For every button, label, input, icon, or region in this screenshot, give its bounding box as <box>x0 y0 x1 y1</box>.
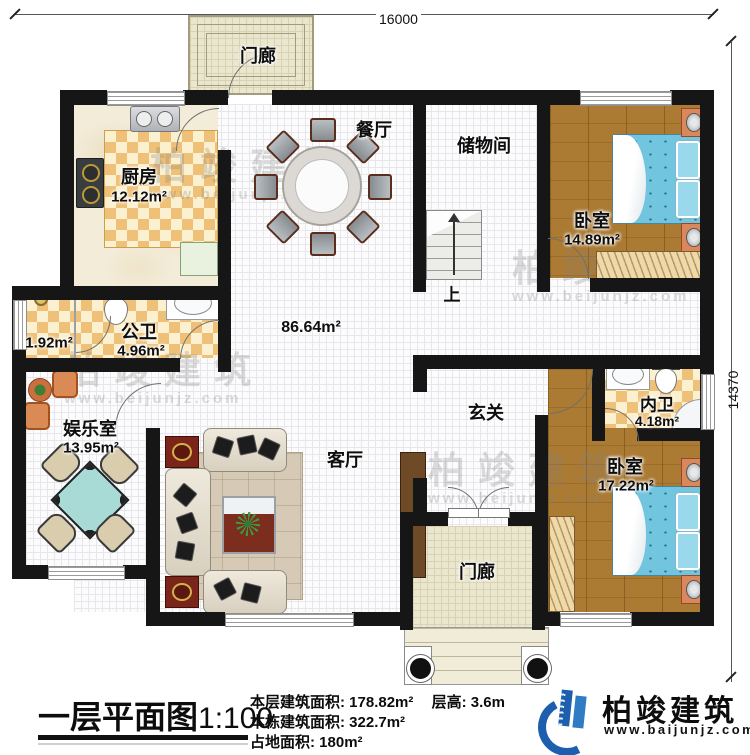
stat-row: 本栋建筑面积: 322.7m² <box>250 713 505 733</box>
wall <box>590 278 714 292</box>
room-label-dining: 餐厅 <box>356 116 392 142</box>
dimension-right: 14370 <box>725 357 741 423</box>
stat-label: 本栋建筑面积: <box>250 714 345 731</box>
sofa-pillow <box>236 434 257 455</box>
window <box>701 374 715 430</box>
wall <box>400 512 413 630</box>
entry-door-leaf <box>478 508 510 518</box>
stat-value: 178.82m² <box>349 694 413 711</box>
window <box>560 613 632 627</box>
wall <box>183 90 228 105</box>
sink-bowl <box>157 111 173 127</box>
dining-chair <box>368 174 392 200</box>
wall <box>413 355 714 369</box>
room-label-bedroom2: 卧室 <box>607 453 643 479</box>
wall <box>146 428 160 626</box>
plan-title: 一层平面图1:100 <box>38 692 273 738</box>
wall <box>12 565 48 579</box>
coffee-table <box>222 496 276 554</box>
side-cabinet <box>165 436 199 468</box>
window <box>225 613 354 627</box>
wall <box>12 286 231 300</box>
wardrobe <box>596 251 706 279</box>
burner <box>82 186 100 204</box>
title-underline <box>38 735 248 740</box>
sink-bowl <box>136 111 152 127</box>
stair-arrow-head <box>448 213 460 222</box>
wall <box>146 612 225 626</box>
room-label-storage: 储物间 <box>457 132 511 158</box>
room-label-master-bath: 内卫 <box>640 391 674 416</box>
wall <box>413 104 426 292</box>
area-label-entertainment: 13.95m² <box>63 440 119 457</box>
fridge <box>180 242 218 276</box>
cabinet-ornament <box>172 583 192 601</box>
wall <box>218 150 231 372</box>
side-cabinet <box>165 576 199 608</box>
area-label-bedroom2: 17.22m² <box>598 478 654 495</box>
stat-label: 本层建筑面积: <box>250 694 345 711</box>
wall <box>532 612 560 626</box>
stat-label: 占地面积: <box>250 734 315 751</box>
window <box>107 91 185 106</box>
logo-icon <box>538 688 594 744</box>
wall <box>413 355 427 392</box>
bed-sheet <box>613 487 646 575</box>
wall <box>12 358 180 372</box>
room-label-living: 客厅 <box>327 446 363 472</box>
bed-pillow <box>676 532 700 570</box>
area-label-public-bath: 4.96m² <box>117 343 165 360</box>
dining-chair <box>310 232 336 256</box>
burner <box>82 164 100 182</box>
stat-row: 本层建筑面积: 178.82m² 层高: 3.6m <box>250 693 505 713</box>
plant-table <box>28 378 52 402</box>
entry-door-leaf <box>448 508 480 518</box>
room-label-public-bath: 公卫 <box>121 318 157 344</box>
bed-sheet <box>613 135 646 223</box>
kitchen-sink <box>130 106 180 132</box>
plan-title-text: 一层平面图 <box>38 699 198 735</box>
dimension-top: 16000 <box>376 11 421 27</box>
cabinet-ornament <box>172 443 192 461</box>
floor-height-label: 层高: <box>432 694 467 711</box>
dining-chair <box>254 174 278 200</box>
stove <box>76 158 104 208</box>
wall <box>60 90 74 300</box>
stat-value: 322.7m² <box>349 714 405 731</box>
stats-block: 本层建筑面积: 178.82m² 层高: 3.6m 本栋建筑面积: 322.7m… <box>250 693 505 753</box>
floor-plan: 柏竣建筑 www.beijunjz.com 柏竣建筑 www.beijunjz.… <box>0 0 750 755</box>
wall <box>630 612 714 626</box>
room-label-porch-top: 门廊 <box>240 42 276 68</box>
dining-table-top <box>295 159 349 213</box>
room-label-kitchen: 厨房 <box>121 163 157 189</box>
stair-arrow-line <box>453 219 455 275</box>
room-label-entertainment: 娱乐室 <box>63 415 117 441</box>
area-label-great-room: 86.64m² <box>281 319 341 337</box>
porch-column-left <box>407 655 434 682</box>
wicker-chair <box>24 402 50 430</box>
plant <box>236 512 260 536</box>
wall <box>700 90 714 626</box>
wicker-chair <box>52 370 78 398</box>
area-label-kitchen: 12.12m² <box>111 189 167 206</box>
title-underline-shadow <box>38 743 248 745</box>
staircase <box>426 210 482 280</box>
wall <box>592 428 605 441</box>
label-stairs-up: 上 <box>444 281 461 306</box>
porch-column-right <box>524 655 551 682</box>
window <box>48 566 125 580</box>
dining-chair <box>310 118 336 142</box>
bed-pillow <box>676 180 700 218</box>
room-label-porch-bottom: 门廊 <box>459 558 495 584</box>
wall <box>537 278 548 292</box>
logo: 柏竣建筑 www.baijunjz.com <box>538 684 738 748</box>
floor-height-value: 3.6m <box>471 694 505 711</box>
dining-table <box>282 146 362 226</box>
logo-url: www.baijunjz.com <box>604 722 750 737</box>
room-label-bedroom1: 卧室 <box>574 207 610 233</box>
wall <box>413 512 448 526</box>
wardrobe <box>549 516 575 612</box>
dimension-line-top <box>14 14 714 15</box>
wall <box>272 90 580 105</box>
stat-row: 占地面积: 180m² <box>250 733 505 753</box>
room-label-foyer: 玄关 <box>468 399 504 425</box>
bed-pillow <box>676 493 700 531</box>
wall <box>508 512 535 526</box>
bed-pillow <box>676 141 700 179</box>
area-label-master-bath: 4.18m² <box>635 413 679 429</box>
window <box>580 91 672 106</box>
stat-value: 180m² <box>319 734 362 751</box>
area-label-shower: 1.92m² <box>25 335 73 352</box>
area-label-bedroom1: 14.89m² <box>564 232 620 249</box>
sofa-pillow <box>175 541 196 562</box>
